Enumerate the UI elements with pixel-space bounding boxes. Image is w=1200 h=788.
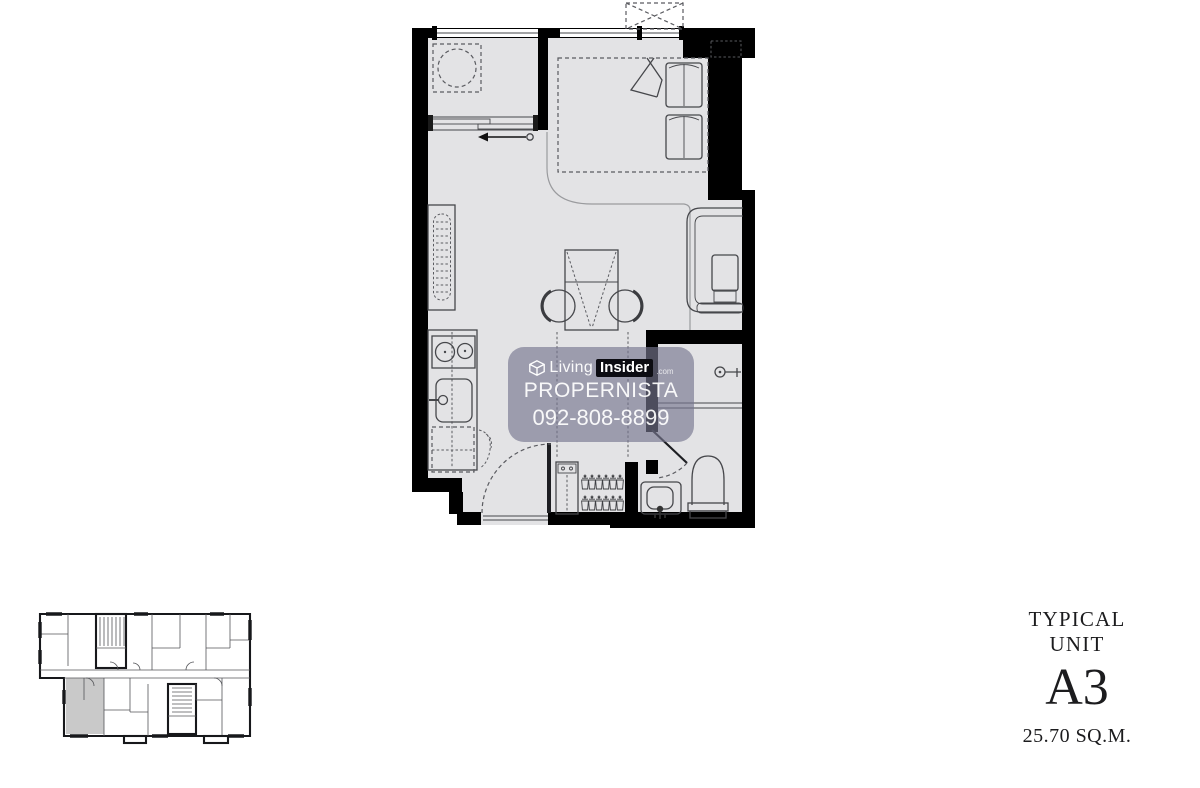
- logo-text-living: Living: [549, 360, 593, 376]
- highlighted-unit: [66, 678, 104, 734]
- unit-floor-plan: [412, 3, 758, 528]
- keyplan-bump: [204, 736, 228, 743]
- keyplan-bump: [124, 736, 146, 743]
- watermark-badge: LivingInsider.com PROPERNISTA 092-808-88…: [508, 347, 694, 442]
- unit-floor: [416, 28, 755, 528]
- logo-text-insider: Insider: [596, 359, 653, 377]
- building-key-plan: [40, 614, 250, 743]
- unit-code: A3: [1002, 661, 1152, 716]
- livinginsider-logo: LivingInsider.com: [528, 359, 673, 377]
- watermark-phone-number: 092-808-8899: [532, 405, 669, 431]
- stair-core-icon: [96, 614, 126, 668]
- keyplan-door-arcs: [86, 662, 222, 686]
- unit-area: 25.70 SQ.M.: [1002, 725, 1152, 748]
- logo-text-tld: .com: [656, 368, 673, 376]
- unit-label: TYPICAL UNIT A3 25.70 SQ.M.: [1002, 607, 1152, 748]
- ac-condenser-icon: [626, 3, 683, 29]
- unit-type-title: TYPICAL UNIT: [1002, 607, 1152, 657]
- livinginsider-cube-icon: [528, 359, 546, 377]
- stair-core-icon: [168, 684, 196, 734]
- right-recess: [742, 57, 758, 190]
- watermark-agency-name: PROPERNISTA: [524, 379, 678, 403]
- page-canvas: LivingInsider.com PROPERNISTA 092-808-88…: [0, 0, 1200, 788]
